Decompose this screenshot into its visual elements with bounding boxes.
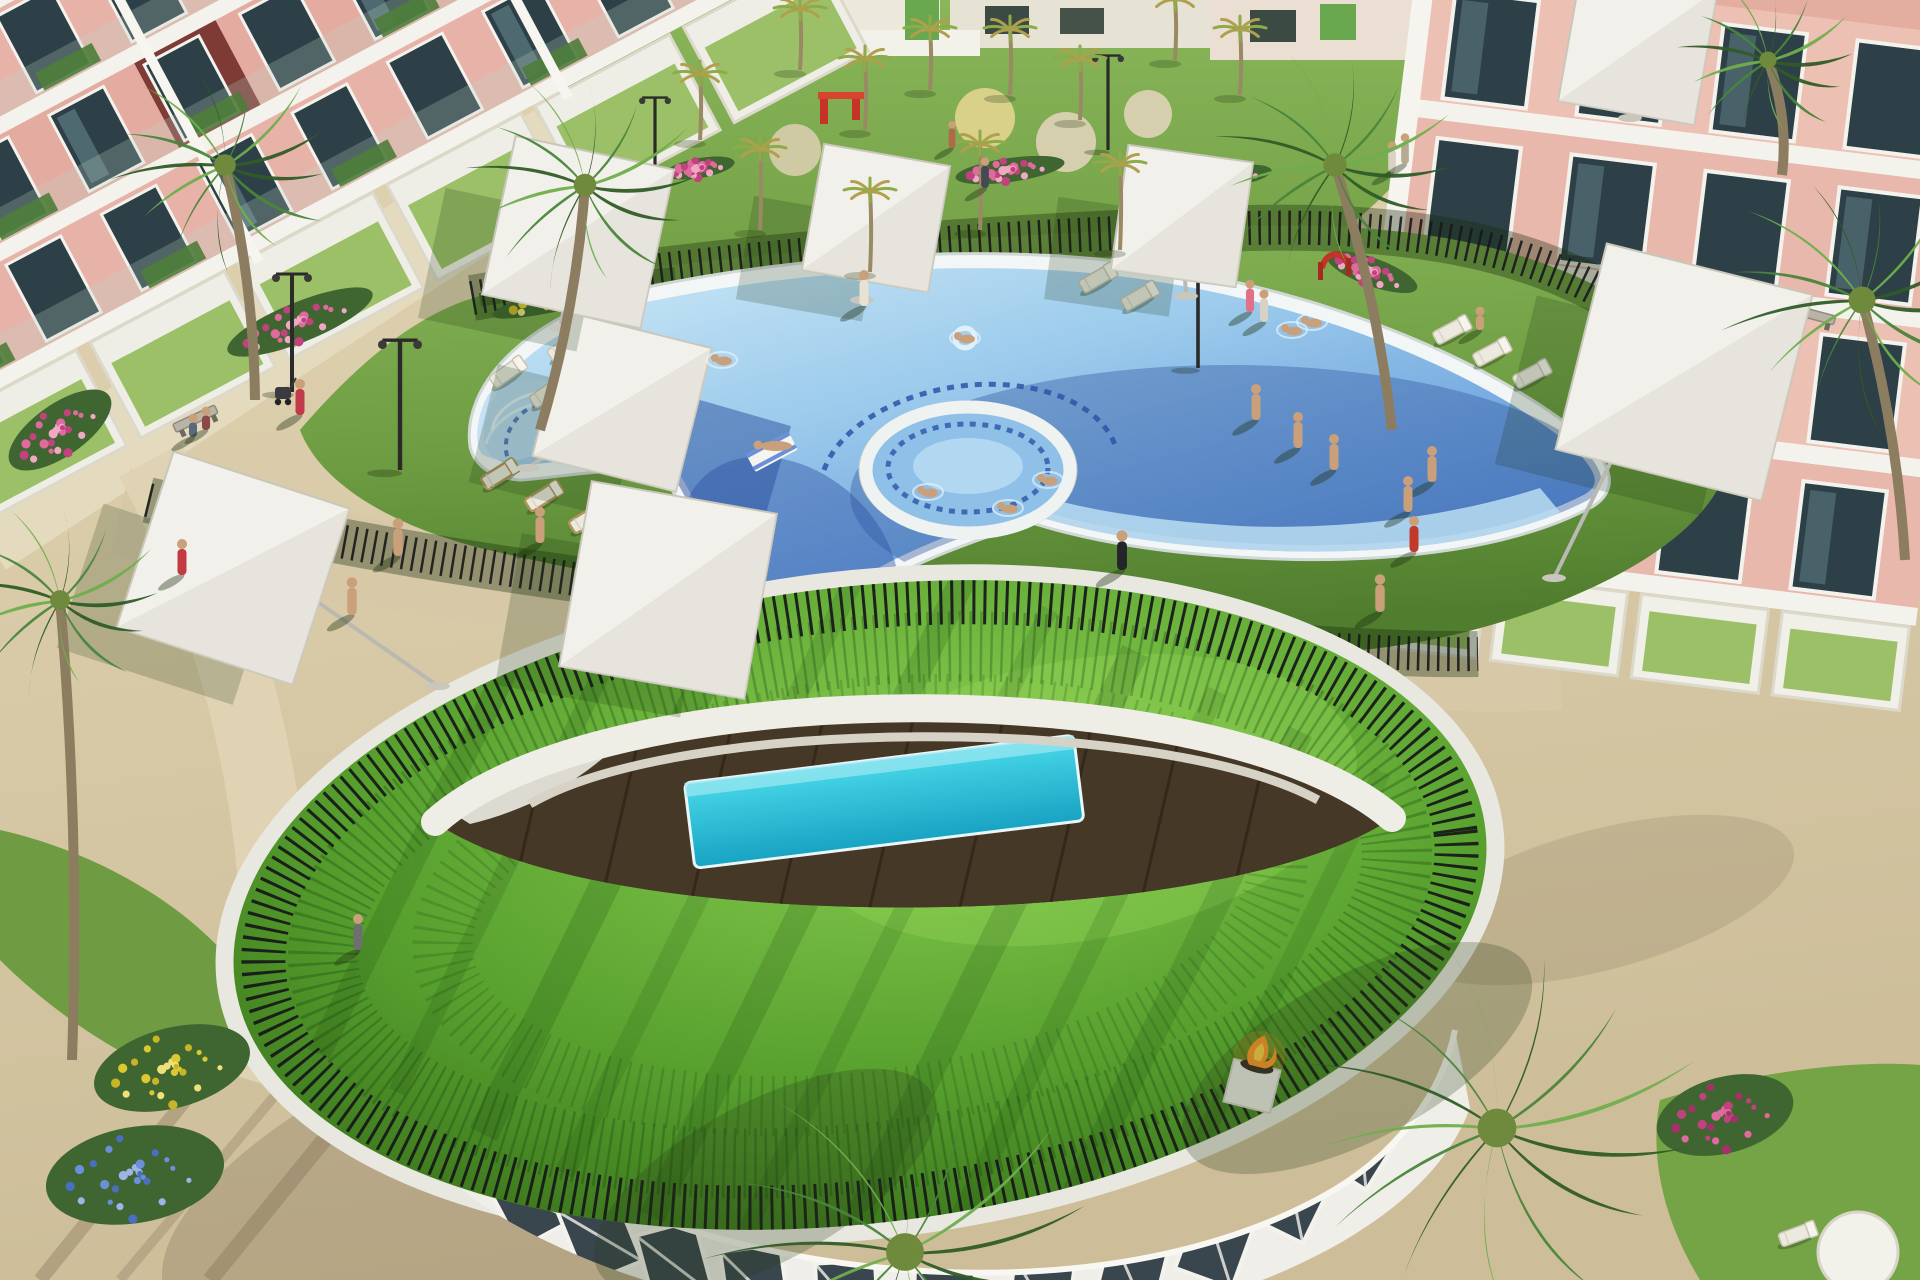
aerial-render-figure: Computer-generated aerial rendering of a… [0, 0, 1920, 1280]
person-head [859, 270, 869, 280]
parasol-canopy [559, 481, 777, 699]
person-body [347, 588, 356, 615]
person-body [949, 129, 956, 149]
person-body [1246, 289, 1254, 312]
person-body [202, 416, 210, 430]
person-head [1427, 446, 1437, 456]
parasol-base [1174, 292, 1198, 300]
person-body [1252, 394, 1261, 420]
person-head [353, 914, 363, 924]
parasol-base [426, 682, 450, 690]
person-body [1330, 444, 1339, 470]
person-body [354, 924, 363, 950]
person-head [1409, 516, 1419, 526]
parasol [1558, 0, 1718, 125]
person-head [189, 414, 198, 423]
person-body [981, 166, 989, 188]
person-body [1117, 541, 1127, 570]
person-body [860, 280, 869, 306]
person-head [1117, 530, 1128, 541]
person-head [1476, 307, 1485, 316]
kids-pool [860, 402, 1076, 538]
parasol-canopy [802, 144, 950, 292]
person-head [1329, 434, 1339, 444]
person-head [1246, 280, 1255, 289]
person-body [1476, 316, 1484, 330]
person-body [536, 517, 545, 543]
person-head [948, 121, 956, 129]
parasol-canopy [1558, 0, 1718, 125]
person-body [1428, 456, 1437, 482]
person-body [1410, 526, 1419, 552]
person-head [1293, 412, 1303, 422]
person-body [1404, 486, 1413, 512]
round-table [1818, 1212, 1898, 1280]
person-head [347, 577, 358, 588]
person-head [393, 518, 404, 529]
parasol-base [516, 464, 540, 472]
person-head [202, 407, 211, 416]
person-head [1375, 574, 1386, 585]
parasol-base [1542, 574, 1566, 582]
person-head [295, 379, 305, 389]
person-head [177, 539, 187, 549]
person-body [1260, 299, 1268, 322]
window [1844, 40, 1920, 157]
person-body [296, 389, 305, 415]
person-body [393, 529, 402, 556]
person-head [1260, 290, 1269, 299]
person-head [1403, 476, 1413, 486]
person-body [1375, 585, 1384, 612]
person-head [1251, 384, 1261, 394]
person-head [981, 157, 990, 166]
person-head [535, 507, 545, 517]
person-body [1294, 422, 1303, 448]
person-body [178, 549, 187, 575]
scene-canvas [0, 0, 1920, 1280]
